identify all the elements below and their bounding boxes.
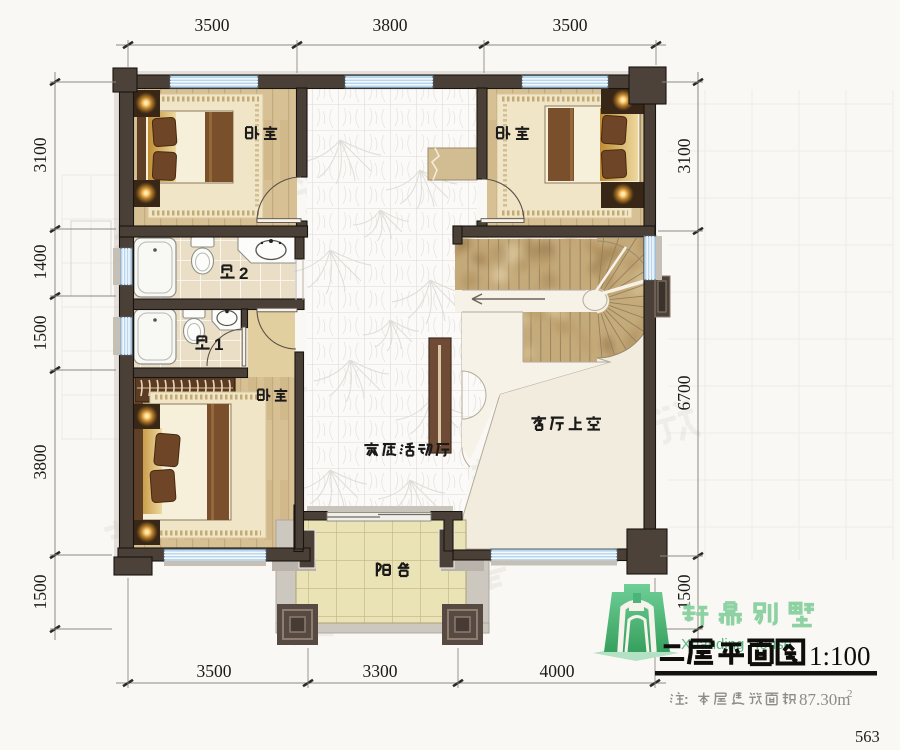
svg-text:87.30m: 87.30m [799,690,850,709]
svg-text:1500: 1500 [30,315,50,350]
svg-text:1500: 1500 [30,574,50,609]
svg-text:2: 2 [239,264,248,283]
svg-text:3500: 3500 [197,661,232,681]
svg-text:1: 1 [214,335,223,354]
svg-text:3100: 3100 [674,138,694,173]
svg-text:2: 2 [847,688,853,700]
svg-text:1400: 1400 [30,244,50,279]
svg-text:6700: 6700 [674,375,694,410]
svg-text:1500: 1500 [674,574,694,609]
svg-text:1:100: 1:100 [809,641,871,671]
svg-text:563: 563 [855,727,880,746]
svg-text:3800: 3800 [373,15,408,35]
svg-text:3800: 3800 [30,444,50,479]
svg-text:3500: 3500 [195,15,230,35]
svg-text:3100: 3100 [30,137,50,172]
svg-text:4000: 4000 [540,661,575,681]
svg-text::: : [684,691,689,707]
svg-text:3300: 3300 [363,661,398,681]
svg-text:3500: 3500 [553,15,588,35]
